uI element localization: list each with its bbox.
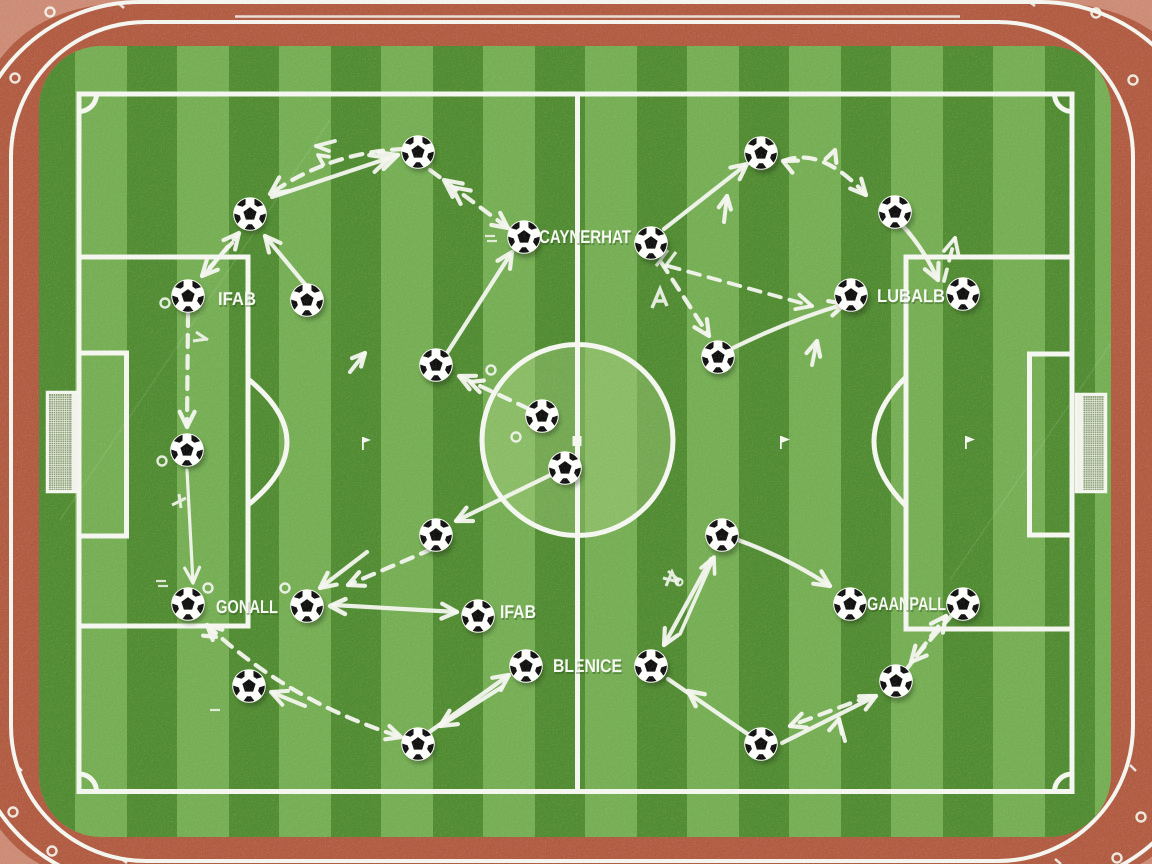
svg-text:BLENICE: BLENICE	[553, 655, 622, 676]
svg-text:GAANPALL: GAANPALL	[867, 593, 946, 614]
svg-text:CAYNERHAT: CAYNERHAT	[539, 226, 632, 247]
svg-text:IFAB: IFAB	[218, 288, 256, 309]
svg-text:GONALL: GONALL	[216, 596, 278, 617]
svg-text:LUBALB: LUBALB	[877, 285, 945, 306]
svg-text:IFAB: IFAB	[500, 601, 536, 622]
